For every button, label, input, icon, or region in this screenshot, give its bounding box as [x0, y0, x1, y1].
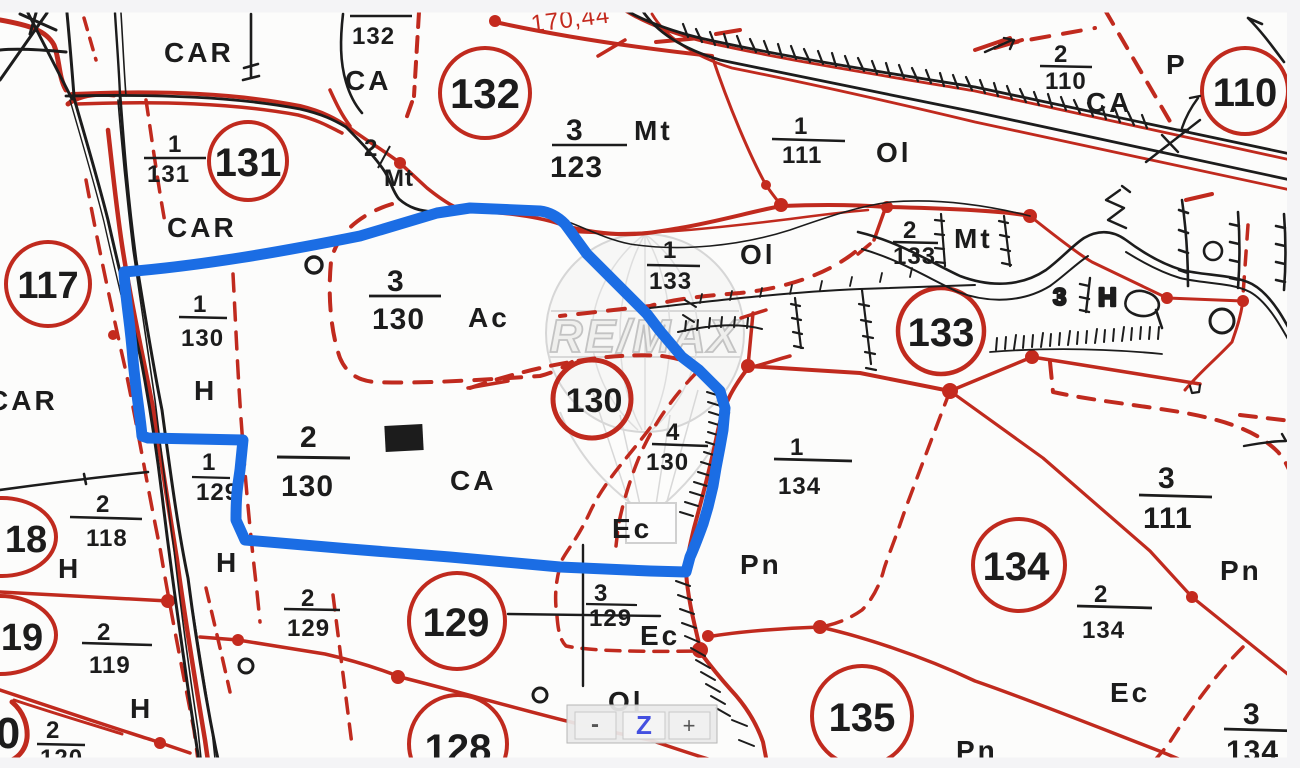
svg-text:2: 2 [1054, 41, 1068, 68]
svg-text:1: 1 [202, 449, 216, 476]
svg-text:111: 111 [1143, 502, 1193, 535]
svg-text:Mt: Mt [954, 223, 993, 254]
svg-text:1: 1 [193, 291, 207, 318]
svg-text:2: 2 [46, 717, 60, 744]
svg-text:P: P [1166, 49, 1188, 80]
svg-text:2: 2 [97, 619, 111, 646]
svg-text:1: 1 [794, 113, 808, 140]
svg-text:Ec: Ec [640, 620, 680, 651]
svg-text:Ol: Ol [876, 137, 912, 168]
svg-text:3: 3 [594, 580, 608, 607]
svg-text:CA: CA [450, 465, 496, 496]
svg-text:Mt: Mt [384, 165, 414, 192]
svg-text:2: 2 [96, 491, 110, 518]
svg-text:H: H [216, 547, 239, 578]
svg-text:134: 134 [983, 545, 1050, 589]
svg-text:1: 1 [168, 131, 182, 158]
svg-text:Ec: Ec [1110, 677, 1150, 708]
svg-text:130: 130 [181, 325, 224, 352]
svg-text:H: H [1098, 282, 1117, 312]
svg-text:0: 0 [0, 709, 20, 758]
svg-text:Pn: Pn [1220, 555, 1262, 586]
svg-text:1: 1 [663, 237, 677, 264]
svg-text:2: 2 [903, 217, 917, 244]
svg-text:117: 117 [17, 265, 78, 307]
svg-text:2: 2 [364, 135, 378, 162]
svg-text:131: 131 [147, 161, 190, 188]
svg-text:2: 2 [301, 585, 315, 612]
svg-text:110: 110 [1213, 71, 1278, 115]
svg-text:132: 132 [352, 23, 395, 50]
svg-text:Mt: Mt [634, 115, 673, 146]
svg-text:Ac: Ac [468, 302, 510, 333]
svg-text:1: 1 [790, 434, 804, 461]
svg-text:129: 129 [287, 615, 330, 642]
svg-text:119: 119 [89, 652, 131, 679]
svg-text:133: 133 [649, 268, 692, 295]
svg-text:Ec: Ec [612, 513, 652, 544]
svg-text:110: 110 [1045, 68, 1087, 95]
svg-text:130: 130 [566, 382, 623, 420]
svg-text:Z: Z [636, 710, 652, 740]
svg-text:3: 3 [1243, 698, 1261, 731]
svg-text:135: 135 [829, 696, 896, 740]
svg-text:Pn: Pn [740, 549, 782, 580]
svg-text:CA: CA [345, 65, 391, 96]
svg-text:H: H [58, 553, 81, 584]
svg-text:131: 131 [215, 141, 282, 185]
svg-text:Ol: Ol [740, 239, 776, 270]
svg-text:130: 130 [372, 303, 425, 336]
svg-text:CAR: CAR [0, 385, 58, 416]
svg-text:4: 4 [666, 419, 680, 446]
svg-text:133: 133 [893, 243, 936, 270]
svg-text:3: 3 [387, 265, 405, 298]
svg-text:3: 3 [566, 114, 584, 147]
svg-text:134: 134 [778, 473, 821, 500]
svg-text:129: 129 [423, 601, 490, 645]
svg-text:2: 2 [300, 421, 318, 454]
svg-text:134: 134 [1082, 617, 1125, 644]
svg-text:3: 3 [1158, 462, 1176, 495]
svg-text:130: 130 [281, 470, 334, 503]
svg-text:3: 3 [1053, 284, 1066, 311]
svg-text:+: + [683, 713, 696, 738]
svg-text:CAR: CAR [164, 37, 234, 68]
svg-text:H: H [130, 693, 153, 724]
svg-text:19: 19 [1, 617, 43, 659]
svg-text:-: - [591, 711, 599, 738]
svg-text:129: 129 [589, 605, 632, 632]
svg-text:2: 2 [1094, 581, 1108, 608]
svg-text:118: 118 [86, 525, 128, 552]
svg-text:133: 133 [908, 311, 975, 355]
svg-text:CAR: CAR [167, 212, 237, 243]
svg-text:111: 111 [782, 142, 822, 169]
svg-text:123: 123 [550, 151, 603, 184]
svg-text:H: H [194, 375, 217, 406]
svg-text:130: 130 [646, 449, 689, 476]
svg-text:132: 132 [450, 70, 520, 117]
svg-text:CA: CA [1086, 87, 1132, 118]
svg-text:18: 18 [5, 519, 47, 561]
